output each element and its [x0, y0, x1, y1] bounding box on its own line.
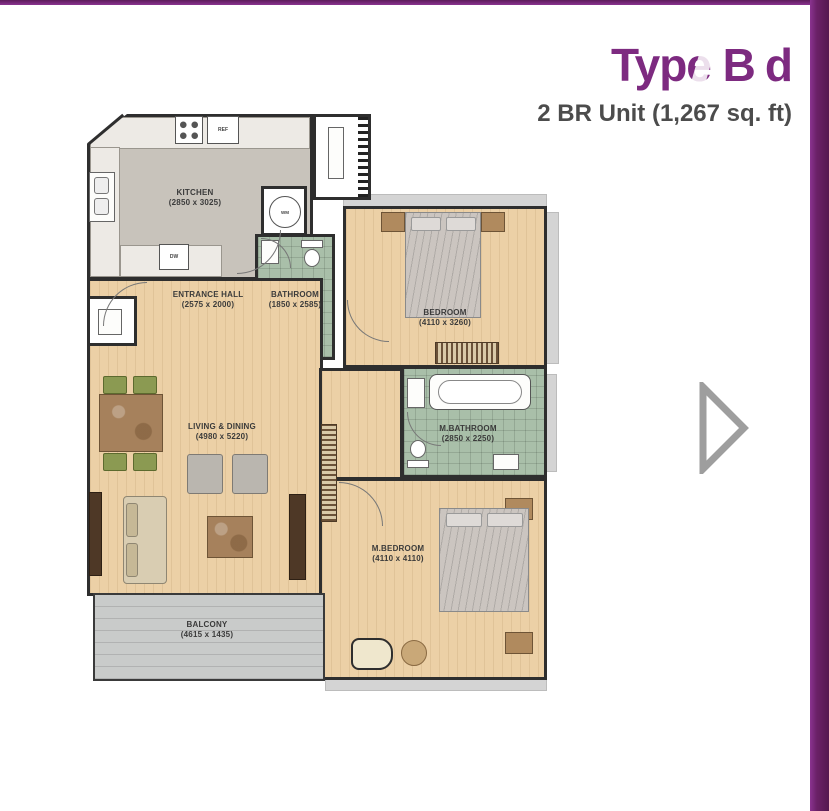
bedroom-bed [405, 212, 481, 318]
dining-table [99, 394, 163, 452]
sofa-cushion-1 [126, 503, 138, 537]
mbedroom-label: M.BEDROOM (4110 x 4110) [338, 544, 458, 565]
living-dining-label: LIVING & DINING (4980 x 5220) [162, 422, 282, 443]
dining-chair-2 [133, 376, 157, 394]
bedroom-right-window-strip [545, 212, 559, 364]
mbed-pillow-2 [487, 513, 523, 527]
page-title: Type Bd [480, 38, 792, 94]
bedroom-pillow-2 [446, 217, 476, 231]
fridge-icon: REF [207, 116, 239, 144]
laundry-closet: WM [261, 186, 307, 236]
mbedroom-ottoman [401, 640, 427, 666]
play-next-icon [698, 382, 750, 474]
sideboard [89, 492, 102, 576]
balcony-label: BALCONY (4615 x 1435) [147, 620, 267, 641]
right-accent-bar [810, 0, 829, 811]
toilet-bowl [304, 249, 320, 267]
mbed-pillow-1 [446, 513, 482, 527]
dining-chair-1 [103, 376, 127, 394]
kitchen-sink [89, 172, 115, 222]
mbedroom-chair [351, 638, 393, 670]
sink-basin-1 [94, 177, 109, 194]
mbathroom-vanity [493, 454, 519, 470]
mtoilet-tank [407, 460, 429, 468]
utility-shaft [313, 114, 371, 200]
kitchen-label: KITCHEN (2850 x 3025) [125, 188, 265, 209]
armchair-1 [187, 454, 223, 494]
dining-chair-3 [103, 453, 127, 471]
page-title-text: Type B [611, 39, 755, 91]
sofa-cushion-2 [126, 543, 138, 577]
toilet-tank [301, 240, 323, 248]
dining-chair-4 [133, 453, 157, 471]
stove-icon [175, 116, 203, 144]
mbathroom-label: M.BATHROOM (2850 x 2250) [408, 424, 528, 445]
bedroom-label: BEDROOM (4110 x 3260) [373, 308, 517, 329]
shaft-hatch [358, 117, 368, 197]
page-title-ghost: d [765, 39, 792, 91]
sofa [123, 496, 167, 584]
mbathroom-sink [407, 378, 425, 408]
sink-basin-2 [94, 198, 109, 215]
bedroom-nightstand-right [481, 212, 505, 232]
bathtub [429, 374, 531, 410]
bedroom-pillow-1 [411, 217, 441, 231]
coffee-table [207, 516, 253, 558]
entrance-hall-label: ENTRANCE HALL (2575 x 2000) [148, 290, 268, 311]
bathtub-basin [438, 380, 522, 404]
top-accent-strip [0, 0, 829, 5]
bathroom-toilet [301, 240, 323, 268]
washing-machine-icon: WM [269, 196, 301, 228]
bedroom-nightstand-left [381, 212, 405, 232]
floorplan: WM REF DW [85, 112, 563, 695]
armchair-2 [232, 454, 268, 494]
tv-console [289, 494, 306, 580]
bedroom-dresser [435, 342, 499, 364]
dishwasher-icon: DW [159, 244, 189, 270]
mbedroom-bench [505, 632, 533, 654]
shaft-duct [328, 127, 344, 179]
next-slide-button[interactable] [698, 382, 750, 474]
mbedroom-wardrobe [321, 424, 337, 522]
